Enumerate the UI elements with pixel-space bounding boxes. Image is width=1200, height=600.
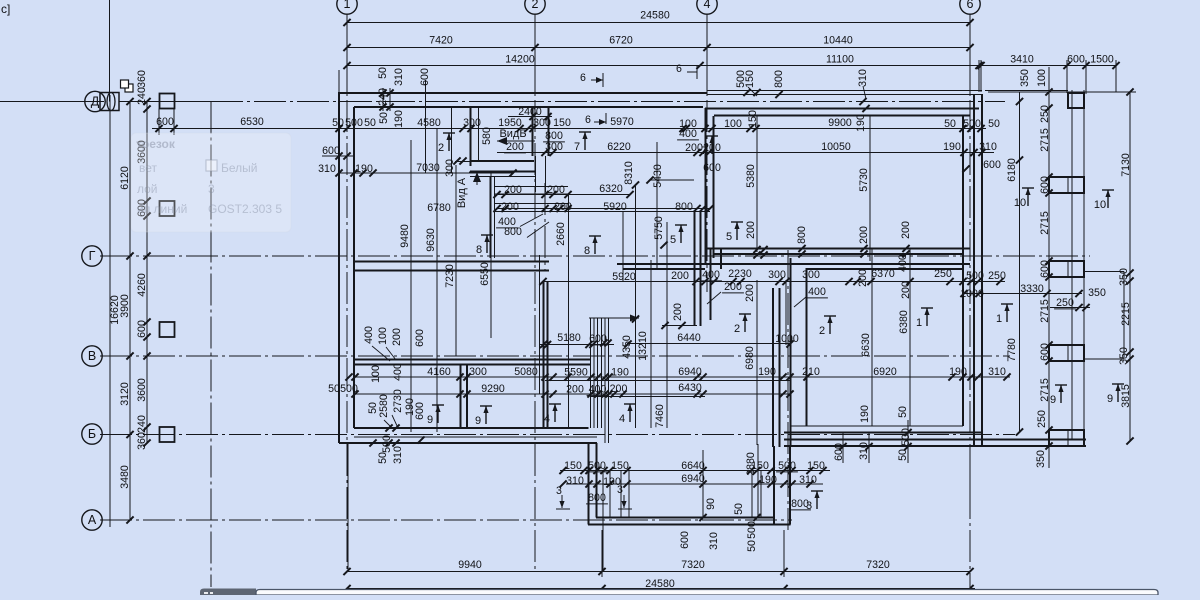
svg-text:400: 400 — [363, 326, 375, 344]
svg-text:6370: 6370 — [871, 268, 895, 280]
svg-text:150: 150 — [611, 460, 629, 472]
svg-text:400: 400 — [702, 269, 720, 281]
svg-text:50: 50 — [378, 112, 390, 124]
svg-text:3: 3 — [617, 484, 623, 496]
svg-text:5430: 5430 — [652, 164, 664, 188]
svg-text:5920: 5920 — [612, 271, 636, 283]
svg-text:14200: 14200 — [505, 53, 535, 65]
svg-text:6: 6 — [676, 63, 682, 75]
svg-text:10: 10 — [1014, 197, 1026, 209]
svg-text:8310: 8310 — [623, 161, 635, 185]
svg-text:200: 200 — [391, 328, 403, 346]
svg-text:5590: 5590 — [564, 366, 588, 378]
svg-text:6430: 6430 — [678, 382, 702, 394]
svg-text:600: 600 — [703, 162, 721, 174]
svg-text:2730: 2730 — [392, 389, 404, 413]
svg-text:100: 100 — [1036, 69, 1048, 87]
svg-text:200: 200 — [504, 184, 522, 196]
svg-text:400: 400 — [392, 363, 404, 381]
svg-text:5180: 5180 — [557, 332, 581, 344]
svg-text:5730: 5730 — [858, 168, 870, 192]
svg-text:c]: c] — [1, 2, 10, 16]
svg-text:4260: 4260 — [136, 273, 148, 297]
svg-text:9940: 9940 — [458, 559, 482, 571]
svg-text:10: 10 — [1094, 199, 1106, 211]
svg-text:350: 350 — [1118, 268, 1130, 286]
svg-text:300: 300 — [545, 141, 563, 153]
svg-text:Вид А: Вид А — [456, 177, 468, 208]
svg-text:600: 600 — [414, 402, 426, 420]
svg-text:1: 1 — [916, 317, 922, 329]
svg-text:50: 50 — [897, 406, 909, 418]
svg-text:200: 200 — [671, 270, 689, 282]
svg-text:150: 150 — [751, 460, 769, 472]
svg-text:400: 400 — [679, 128, 697, 140]
svg-text:50: 50 — [944, 118, 956, 130]
svg-text:150: 150 — [807, 460, 825, 472]
svg-text:5380: 5380 — [745, 164, 757, 188]
svg-text:190: 190 — [943, 141, 961, 153]
svg-text:250: 250 — [988, 270, 1006, 282]
svg-text:3330: 3330 — [1020, 283, 1044, 295]
svg-text:300: 300 — [444, 159, 456, 177]
svg-text:360: 360 — [136, 432, 148, 450]
svg-text:7320: 7320 — [681, 559, 705, 571]
svg-text:240: 240 — [377, 88, 389, 106]
svg-text:9: 9 — [1050, 394, 1056, 406]
svg-text:9630: 9630 — [425, 228, 437, 252]
svg-text:Белый: Белый — [221, 161, 257, 175]
svg-text:50: 50 — [364, 117, 376, 129]
svg-text:200: 200 — [900, 281, 912, 299]
svg-text:ВидБ: ВидБ — [499, 128, 526, 140]
svg-text:6120: 6120 — [119, 166, 131, 190]
svg-text:13210: 13210 — [637, 331, 649, 361]
svg-text:6630: 6630 — [860, 333, 872, 357]
svg-text:6940: 6940 — [678, 366, 702, 378]
svg-text:4: 4 — [544, 413, 550, 425]
svg-text:100: 100 — [370, 365, 382, 383]
svg-text:9: 9 — [475, 415, 481, 427]
svg-text:6320: 6320 — [599, 183, 623, 195]
svg-text:6720: 6720 — [609, 34, 633, 46]
svg-text:Д: Д — [91, 94, 100, 108]
svg-text:600: 600 — [414, 329, 426, 347]
svg-text:150: 150 — [553, 117, 571, 129]
svg-text:600: 600 — [322, 145, 340, 157]
svg-text:7130: 7130 — [1120, 153, 1132, 177]
svg-text:2715: 2715 — [1039, 211, 1051, 235]
svg-text:50: 50 — [746, 540, 758, 552]
svg-text:3600: 3600 — [136, 378, 148, 402]
svg-text:7: 7 — [574, 141, 580, 153]
svg-text:350: 350 — [1088, 287, 1106, 299]
svg-text:310: 310 — [988, 366, 1006, 378]
svg-text:800: 800 — [773, 70, 785, 88]
svg-text:190: 190 — [855, 114, 867, 132]
svg-text:24580: 24580 — [645, 578, 675, 590]
svg-text:90: 90 — [705, 498, 717, 510]
svg-text:300: 300 — [802, 269, 820, 281]
svg-text:310: 310 — [979, 141, 997, 153]
svg-text:1000: 1000 — [775, 333, 799, 345]
svg-text:100: 100 — [377, 327, 389, 345]
svg-text:240: 240 — [136, 87, 148, 105]
svg-text:200: 200 — [745, 221, 757, 239]
svg-text:7230: 7230 — [444, 264, 456, 288]
svg-text:9900: 9900 — [828, 117, 852, 129]
svg-text:8: 8 — [584, 245, 590, 257]
svg-text:24580: 24580 — [640, 9, 670, 21]
svg-text:2580: 2580 — [378, 394, 390, 418]
svg-text:6780: 6780 — [427, 202, 451, 214]
svg-text:190: 190 — [611, 366, 629, 378]
svg-text:4580: 4580 — [417, 117, 441, 129]
svg-text:5970: 5970 — [610, 116, 634, 128]
svg-text:310: 310 — [799, 474, 817, 486]
svg-text:200: 200 — [566, 383, 584, 395]
svg-text:200: 200 — [506, 141, 524, 153]
svg-text:500: 500 — [345, 117, 363, 129]
svg-text:10050: 10050 — [821, 141, 851, 153]
svg-text:500: 500 — [746, 521, 758, 539]
svg-text:600: 600 — [1039, 260, 1051, 278]
svg-text:800: 800 — [545, 130, 563, 142]
svg-text:200: 200 — [858, 226, 870, 244]
svg-text:6530: 6530 — [240, 116, 264, 128]
svg-text:3: 3 — [556, 485, 562, 497]
svg-text:250: 250 — [1056, 297, 1074, 309]
svg-text:50: 50 — [332, 117, 344, 129]
svg-text:310: 310 — [566, 475, 584, 487]
svg-text:2: 2 — [532, 0, 539, 11]
svg-text:4: 4 — [619, 413, 625, 425]
svg-text:10440: 10440 — [823, 34, 853, 46]
svg-text:250: 250 — [934, 268, 952, 280]
svg-text:2: 2 — [819, 325, 825, 337]
svg-text:200: 200 — [610, 383, 628, 395]
svg-text:310: 310 — [393, 68, 405, 86]
svg-text:7460: 7460 — [654, 404, 666, 428]
svg-text:190: 190 — [859, 405, 871, 423]
svg-text:500: 500 — [963, 118, 981, 130]
svg-text:800: 800 — [791, 498, 809, 510]
svg-text:лой: лой — [137, 182, 158, 196]
svg-text:580: 580 — [481, 127, 493, 145]
svg-text:2215: 2215 — [1120, 302, 1132, 326]
svg-text:200: 200 — [672, 303, 684, 321]
svg-text:GOST2.303 5: GOST2.303 5 — [208, 202, 282, 216]
svg-text:9: 9 — [427, 414, 433, 426]
svg-text:6: 6 — [580, 72, 586, 84]
svg-text:190: 190 — [393, 110, 405, 128]
svg-text:5920: 5920 — [603, 201, 627, 213]
svg-text:100: 100 — [724, 118, 742, 130]
svg-text:310: 310 — [318, 163, 336, 175]
svg-text:350: 350 — [1019, 69, 1031, 87]
svg-text:2230: 2230 — [728, 268, 752, 280]
svg-text:6440: 6440 — [677, 332, 701, 344]
svg-text:50: 50 — [733, 503, 745, 515]
svg-text:6: 6 — [585, 114, 591, 126]
svg-text:300: 300 — [768, 269, 786, 281]
svg-text:150: 150 — [564, 460, 582, 472]
svg-text:50: 50 — [988, 118, 1000, 130]
svg-text:2660: 2660 — [555, 222, 567, 246]
svg-text:200: 200 — [501, 201, 519, 213]
svg-text:400: 400 — [808, 286, 826, 298]
svg-text:8: 8 — [476, 244, 482, 256]
svg-text:трезок: трезок — [136, 137, 176, 151]
svg-text:200: 200 — [554, 201, 572, 213]
svg-text:2: 2 — [438, 142, 444, 154]
svg-text:310: 310 — [392, 446, 404, 464]
svg-text:3900: 3900 — [119, 294, 131, 318]
svg-text:150: 150 — [747, 110, 759, 128]
svg-text:150: 150 — [744, 70, 756, 88]
svg-text:В: В — [88, 349, 96, 363]
svg-text:3815: 3815 — [1120, 384, 1132, 408]
svg-text:200: 200 — [724, 281, 742, 293]
svg-text:190: 190 — [758, 366, 776, 378]
svg-text:2: 2 — [734, 323, 740, 335]
svg-text:500: 500 — [966, 270, 984, 282]
svg-text:1: 1 — [344, 0, 351, 11]
svg-text:6640: 6640 — [681, 460, 705, 472]
svg-text:600: 600 — [419, 68, 431, 86]
svg-text:7420: 7420 — [429, 34, 453, 46]
svg-text:7: 7 — [701, 145, 707, 157]
svg-text:3: 3 — [208, 182, 215, 196]
svg-text:500: 500 — [340, 383, 358, 395]
svg-text:190: 190 — [355, 163, 373, 175]
svg-text:50: 50 — [328, 383, 340, 395]
svg-text:6940: 6940 — [681, 473, 705, 485]
svg-text:А: А — [88, 513, 97, 527]
svg-text:240: 240 — [136, 415, 148, 433]
svg-text:600: 600 — [1039, 176, 1051, 194]
svg-text:6380: 6380 — [898, 310, 910, 334]
svg-text:200: 200 — [547, 184, 565, 196]
svg-text:800: 800 — [675, 201, 693, 213]
svg-text:250: 250 — [1036, 410, 1048, 428]
svg-text:6920: 6920 — [873, 366, 897, 378]
svg-text:600: 600 — [1039, 343, 1051, 361]
svg-text:600: 600 — [983, 159, 1001, 171]
svg-text:50: 50 — [377, 452, 389, 464]
svg-text:200: 200 — [900, 221, 912, 239]
svg-text:вет: вет — [139, 161, 158, 175]
svg-text:300: 300 — [469, 366, 487, 378]
svg-text:7320: 7320 — [866, 559, 890, 571]
svg-text:250: 250 — [1039, 105, 1051, 123]
svg-text:6180: 6180 — [1006, 158, 1018, 182]
svg-text:5080: 5080 — [514, 366, 538, 378]
svg-text:2400: 2400 — [518, 106, 542, 118]
svg-text:4350: 4350 — [621, 335, 633, 359]
svg-text:Б: Б — [88, 427, 96, 441]
svg-text:500: 500 — [778, 460, 796, 472]
svg-text:210: 210 — [802, 366, 820, 378]
svg-text:9: 9 — [1107, 393, 1113, 405]
svg-text:3410: 3410 — [1010, 53, 1034, 65]
svg-text:600: 600 — [136, 320, 148, 338]
svg-text:5: 5 — [726, 231, 732, 243]
svg-text:7780: 7780 — [1006, 338, 1018, 362]
svg-text:4: 4 — [704, 0, 711, 11]
svg-text:190: 190 — [949, 366, 967, 378]
svg-text:800: 800 — [588, 492, 606, 504]
svg-text:800: 800 — [504, 226, 522, 238]
svg-text:350: 350 — [1118, 347, 1130, 365]
svg-text:350: 350 — [1035, 450, 1047, 468]
svg-text:300: 300 — [533, 117, 551, 129]
svg-text:400: 400 — [589, 383, 607, 395]
svg-text:3480: 3480 — [119, 465, 131, 489]
svg-text:4160: 4160 — [427, 366, 451, 378]
svg-text:200: 200 — [744, 284, 756, 302]
svg-text:600: 600 — [679, 531, 691, 549]
svg-text:310: 310 — [857, 69, 869, 87]
svg-text:6550: 6550 — [479, 262, 491, 286]
svg-text:3120: 3120 — [119, 382, 131, 406]
svg-text:9480: 9480 — [399, 224, 411, 248]
svg-text:50: 50 — [377, 67, 389, 79]
svg-text:800: 800 — [796, 226, 808, 244]
svg-text:310: 310 — [708, 532, 720, 550]
svg-text:Г: Г — [89, 249, 96, 263]
svg-text:50: 50 — [897, 449, 909, 461]
svg-text:6980: 6980 — [744, 346, 756, 370]
svg-text:5750: 5750 — [653, 216, 665, 240]
svg-text:600: 600 — [589, 333, 607, 345]
svg-text:5: 5 — [670, 234, 676, 246]
svg-text:7030: 7030 — [416, 162, 440, 174]
svg-text:600: 600 — [1067, 53, 1085, 65]
svg-text:200: 200 — [857, 269, 869, 287]
svg-text:11100: 11100 — [826, 53, 854, 65]
svg-text:2715: 2715 — [1039, 299, 1051, 323]
svg-text:300: 300 — [463, 117, 481, 129]
svg-text:ип линий: ип линий — [137, 202, 187, 216]
svg-text:1500: 1500 — [1090, 53, 1114, 65]
svg-text:500: 500 — [588, 460, 606, 472]
svg-text:310: 310 — [858, 442, 870, 460]
svg-text:360: 360 — [136, 70, 148, 88]
svg-text:2715: 2715 — [1039, 128, 1051, 152]
svg-text:1: 1 — [996, 313, 1002, 325]
svg-text:190: 190 — [759, 474, 777, 486]
svg-text:6: 6 — [967, 0, 974, 11]
svg-text:9290: 9290 — [481, 383, 505, 395]
svg-text:6220: 6220 — [607, 141, 631, 153]
